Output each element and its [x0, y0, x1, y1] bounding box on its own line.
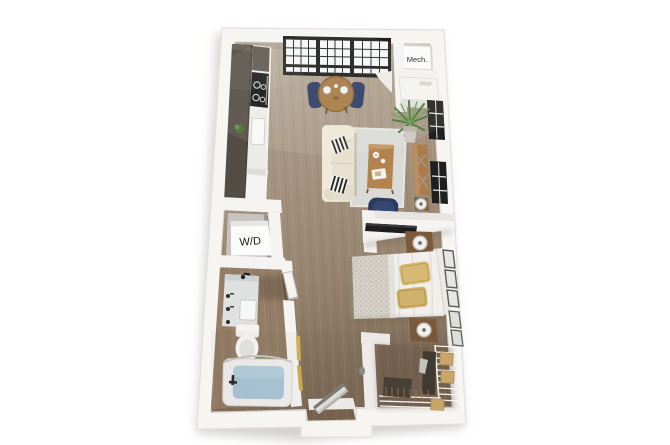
svg-text:W/D: W/D	[239, 235, 261, 248]
